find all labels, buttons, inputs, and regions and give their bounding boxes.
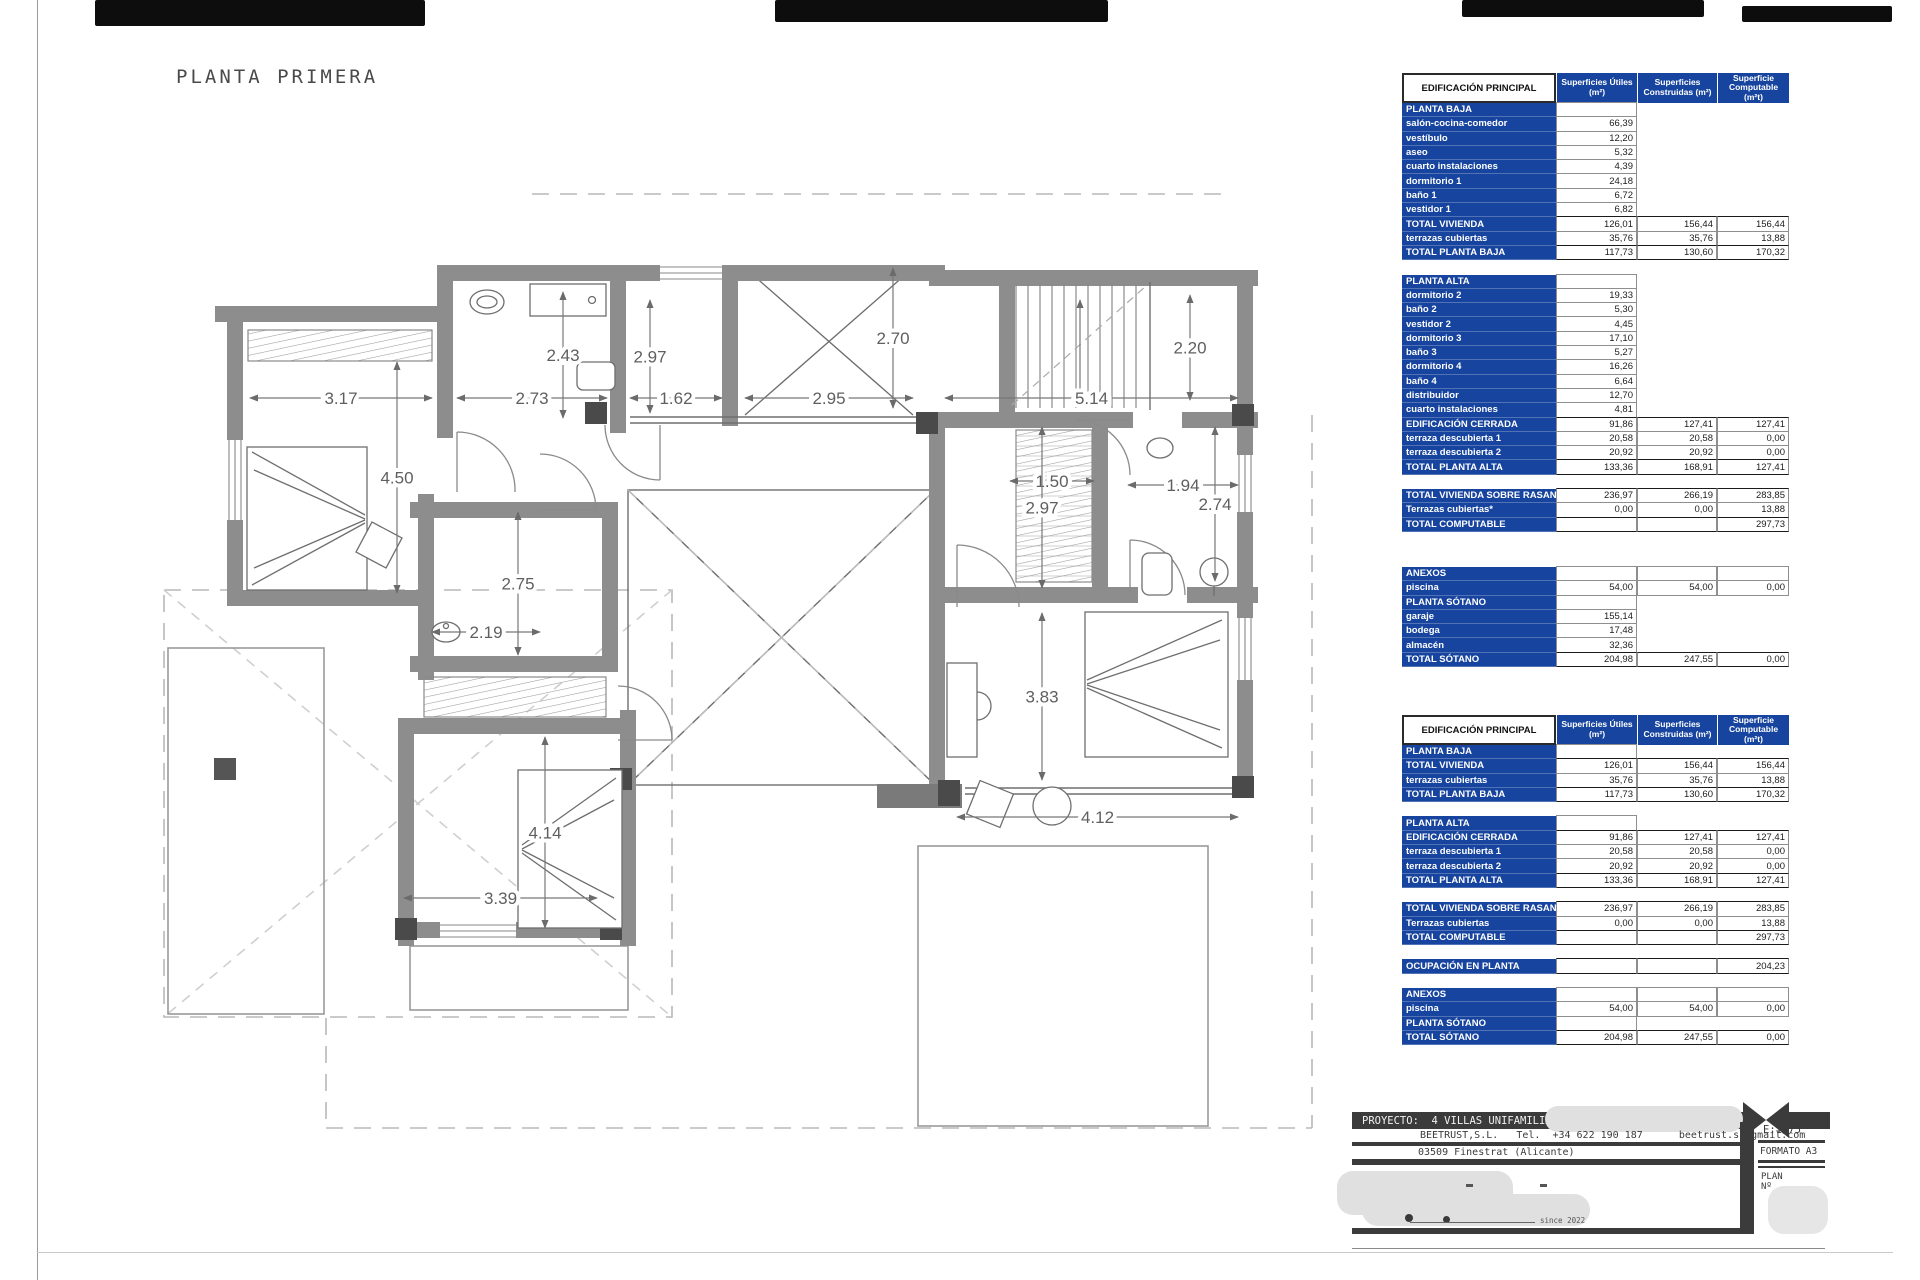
empty-cell bbox=[1637, 360, 1717, 374]
row-label-item: garaje bbox=[1402, 610, 1556, 624]
value-cell: 13,88 bbox=[1717, 231, 1789, 246]
value-cell: 170,32 bbox=[1717, 787, 1789, 802]
value-cell bbox=[1637, 958, 1717, 973]
dimension-label: 1.50 bbox=[1035, 472, 1068, 491]
empty-cell bbox=[1637, 332, 1717, 346]
col-header-construidas: Superficies Construidas (m²) bbox=[1637, 73, 1717, 103]
value-cell: 20,58 bbox=[1637, 844, 1717, 859]
value-cell bbox=[1556, 744, 1637, 759]
row-label-item: cuarto instalaciones bbox=[1402, 403, 1556, 417]
value-cell: 283,85 bbox=[1717, 488, 1789, 503]
value-cell: 266,19 bbox=[1637, 488, 1717, 503]
empty-cell bbox=[1637, 346, 1717, 360]
table-gap-row bbox=[1402, 260, 1789, 274]
empty-cell bbox=[1637, 389, 1717, 403]
row-label-tot: TOTAL PLANTA ALTA bbox=[1402, 874, 1556, 888]
empty-cell bbox=[1637, 103, 1717, 117]
value-cell: 247,55 bbox=[1637, 1030, 1717, 1045]
value-cell: 0,00 bbox=[1717, 652, 1789, 667]
value-cell: 204,98 bbox=[1556, 652, 1637, 667]
dimension-label: 4.12 bbox=[1081, 808, 1114, 827]
value-cell: 6,82 bbox=[1556, 202, 1637, 217]
row-label-item: Terrazas cubiertas* bbox=[1402, 503, 1556, 517]
terrace-marker bbox=[214, 758, 236, 780]
value-cell bbox=[1556, 958, 1637, 973]
value-cell: 247,55 bbox=[1637, 652, 1717, 667]
table-header: EDIFICACIÓN PRINCIPAL Superficies Útiles… bbox=[1402, 715, 1789, 745]
logo-mark bbox=[1466, 1184, 1473, 1187]
row-label-tot: OCUPACIÓN EN PLANTA bbox=[1402, 959, 1556, 973]
value-cell: 20,92 bbox=[1637, 858, 1717, 873]
col-header-computable: Superficie Computable (m²t) bbox=[1717, 73, 1789, 103]
value-cell: 4,39 bbox=[1556, 159, 1637, 174]
titleblock-rule bbox=[1758, 1140, 1825, 1143]
empty-cell bbox=[1717, 317, 1789, 331]
titleblock-rule bbox=[1352, 1228, 1743, 1234]
row-label-sec: ANEXOS bbox=[1402, 988, 1556, 1002]
empty-cell bbox=[1717, 103, 1789, 117]
row-label-item: vestidor 1 bbox=[1402, 203, 1556, 217]
value-cell: 297,73 bbox=[1717, 517, 1789, 532]
row-label-item: terrazas cubiertas bbox=[1402, 232, 1556, 246]
value-cell: 127,41 bbox=[1637, 830, 1717, 845]
value-cell: 0,00 bbox=[1556, 916, 1637, 931]
value-cell: 0,00 bbox=[1717, 445, 1789, 460]
value-cell bbox=[1637, 987, 1717, 1002]
value-cell: 0,00 bbox=[1717, 844, 1789, 859]
value-cell: 20,92 bbox=[1556, 445, 1637, 460]
dimension-label: 4.14 bbox=[528, 824, 561, 843]
empty-cell bbox=[1717, 389, 1789, 403]
row-label-item: terraza descubierta 1 bbox=[1402, 432, 1556, 446]
row-label-item: baño 2 bbox=[1402, 303, 1556, 317]
titleblock-rule bbox=[1758, 1160, 1825, 1163]
empty-cell bbox=[1717, 275, 1789, 289]
empty-cell bbox=[1717, 146, 1789, 160]
value-cell: 130,60 bbox=[1637, 787, 1717, 802]
value-cell: 156,44 bbox=[1717, 216, 1789, 231]
value-cell: 35,76 bbox=[1556, 231, 1637, 246]
dimension-label: 2.97 bbox=[633, 348, 666, 367]
value-cell: 156,44 bbox=[1637, 216, 1717, 231]
row-label-item: terraza descubierta 1 bbox=[1402, 845, 1556, 859]
empty-cell bbox=[1717, 203, 1789, 217]
value-cell: 6,64 bbox=[1556, 374, 1637, 389]
row-label-item: dormitorio 4 bbox=[1402, 360, 1556, 374]
value-cell: 20,92 bbox=[1556, 858, 1637, 873]
value-cell: 266,19 bbox=[1637, 901, 1717, 916]
value-cell: 0,00 bbox=[1637, 916, 1717, 931]
value-cell: 168,91 bbox=[1637, 873, 1717, 888]
value-cell bbox=[1556, 815, 1637, 830]
value-cell bbox=[1556, 566, 1637, 581]
dimension-label: 2.75 bbox=[501, 575, 534, 594]
value-cell: 170,32 bbox=[1717, 245, 1789, 260]
row-label-item: vestidor 2 bbox=[1402, 317, 1556, 331]
empty-cell bbox=[1717, 132, 1789, 146]
col-header-utiles: Superficies Útiles (m²) bbox=[1556, 715, 1637, 745]
value-cell: 0,00 bbox=[1717, 580, 1789, 595]
value-cell: 0,00 bbox=[1717, 1001, 1789, 1016]
empty-cell bbox=[1717, 610, 1789, 624]
row-label-tot: TOTAL VIVIENDA bbox=[1402, 759, 1556, 773]
value-cell: 168,91 bbox=[1637, 459, 1717, 474]
row-label-tot: TOTAL SÓTANO bbox=[1402, 1031, 1556, 1045]
empty-cell bbox=[1717, 375, 1789, 389]
dimension-label: 1.94 bbox=[1166, 476, 1199, 495]
value-cell bbox=[1637, 517, 1717, 532]
titleblock-vbar bbox=[1740, 1122, 1754, 1234]
row-label-item: piscina bbox=[1402, 581, 1556, 595]
row-label-item: distribuidor bbox=[1402, 389, 1556, 403]
row-label-tot: EDIFICACIÓN CERRADA bbox=[1402, 831, 1556, 845]
value-cell: 204,23 bbox=[1717, 958, 1789, 973]
row-label-item: terraza descubierta 2 bbox=[1402, 446, 1556, 460]
terrace-outline bbox=[168, 648, 1208, 1126]
row-label-sec: PLANTA SÓTANO bbox=[1402, 1017, 1556, 1031]
value-cell: 5,32 bbox=[1556, 145, 1637, 160]
value-cell: 0,00 bbox=[1717, 1030, 1789, 1045]
dimension-label: 3.39 bbox=[484, 889, 517, 908]
empty-cell bbox=[1637, 189, 1717, 203]
empty-cell bbox=[1717, 303, 1789, 317]
row-label-sec: PLANTA SÓTANO bbox=[1402, 596, 1556, 610]
value-cell: 0,00 bbox=[1556, 502, 1637, 517]
value-cell: 20,92 bbox=[1637, 445, 1717, 460]
value-cell: 24,18 bbox=[1556, 173, 1637, 188]
row-label-item: baño 1 bbox=[1402, 189, 1556, 203]
table-gap-row bbox=[1402, 888, 1789, 902]
value-cell: 126,01 bbox=[1556, 216, 1637, 231]
titleblock-rule bbox=[1758, 1166, 1825, 1168]
col-header-computable: Superficie Computable (m²t) bbox=[1717, 715, 1789, 745]
table-header: EDIFICACIÓN PRINCIPAL Superficies Útiles… bbox=[1402, 73, 1789, 103]
empty-cell bbox=[1637, 638, 1717, 652]
dimension-label: 2.43 bbox=[546, 346, 579, 365]
empty-cell bbox=[1717, 289, 1789, 303]
value-cell: 35,76 bbox=[1556, 773, 1637, 788]
empty-cell bbox=[1717, 816, 1789, 830]
empty-cell bbox=[1637, 745, 1717, 759]
row-label-item: almacén bbox=[1402, 638, 1556, 652]
row-label-item: terraza descubierta 2 bbox=[1402, 859, 1556, 873]
value-cell bbox=[1556, 274, 1637, 289]
value-cell: 54,00 bbox=[1556, 580, 1637, 595]
value-cell bbox=[1556, 517, 1637, 532]
value-cell: 35,76 bbox=[1637, 231, 1717, 246]
value-cell: 127,41 bbox=[1717, 873, 1789, 888]
value-cell: 32,36 bbox=[1556, 637, 1637, 652]
value-cell: 126,01 bbox=[1556, 758, 1637, 773]
value-cell: 156,44 bbox=[1717, 758, 1789, 773]
row-label-tot: TOTAL COMPUTABLE bbox=[1402, 931, 1556, 945]
value-cell: 127,41 bbox=[1717, 459, 1789, 474]
value-cell: 236,97 bbox=[1556, 488, 1637, 503]
value-cell: 13,88 bbox=[1717, 502, 1789, 517]
titleblock-bottom-line bbox=[1352, 1248, 1825, 1249]
row-label-item: bodega bbox=[1402, 624, 1556, 638]
table-gap-row bbox=[1402, 802, 1789, 816]
empty-cell bbox=[1637, 146, 1717, 160]
empty-cell bbox=[1637, 610, 1717, 624]
dimension-label: 5.14 bbox=[1075, 389, 1108, 408]
col-header-construidas: Superficies Construidas (m²) bbox=[1637, 715, 1717, 745]
value-cell: 54,00 bbox=[1637, 1001, 1717, 1016]
value-cell: 127,41 bbox=[1717, 417, 1789, 432]
value-cell: 16,26 bbox=[1556, 359, 1637, 374]
since-label: since 2022 bbox=[1540, 1216, 1585, 1225]
value-cell: 66,39 bbox=[1556, 116, 1637, 131]
row-label-sec: PLANTA ALTA bbox=[1402, 816, 1556, 830]
value-cell bbox=[1717, 987, 1789, 1002]
logo-mark bbox=[1405, 1214, 1413, 1222]
row-label-item: terrazas cubiertas bbox=[1402, 774, 1556, 788]
value-cell: 155,14 bbox=[1556, 609, 1637, 624]
table-gap-row bbox=[1402, 945, 1789, 959]
empty-cell bbox=[1637, 816, 1717, 830]
value-cell: 130,60 bbox=[1637, 245, 1717, 260]
empty-cell bbox=[1637, 160, 1717, 174]
titleblock-rule bbox=[1352, 1142, 1743, 1146]
value-cell: 283,85 bbox=[1717, 901, 1789, 916]
dimension-label: 2.73 bbox=[515, 389, 548, 408]
empty-cell bbox=[1637, 403, 1717, 417]
plan-number-label: Nº bbox=[1761, 1182, 1772, 1192]
row-label-tot: TOTAL VIVIENDA bbox=[1402, 217, 1556, 231]
surface-table-main: EDIFICACIÓN PRINCIPAL Superficies Útiles… bbox=[1402, 73, 1789, 532]
empty-cell bbox=[1717, 624, 1789, 638]
empty-cell bbox=[1637, 117, 1717, 131]
row-label-sec: PLANTA BAJA bbox=[1402, 103, 1556, 117]
dimension-label: 2.70 bbox=[876, 329, 909, 348]
value-cell: 5,30 bbox=[1556, 302, 1637, 317]
row-label-tot: TOTAL VIVIENDA SOBRE RASANTE bbox=[1402, 902, 1556, 916]
empty-cell bbox=[1637, 317, 1717, 331]
value-cell: 91,86 bbox=[1556, 830, 1637, 845]
row-label-tot: TOTAL SÓTANO bbox=[1402, 653, 1556, 667]
empty-cell bbox=[1637, 1017, 1717, 1031]
value-cell: 117,73 bbox=[1556, 787, 1637, 802]
table-corner-cell: EDIFICACIÓN PRINCIPAL bbox=[1402, 73, 1556, 103]
value-cell: 20,58 bbox=[1556, 844, 1637, 859]
dimension-label: 1.62 bbox=[659, 389, 692, 408]
empty-cell bbox=[1717, 346, 1789, 360]
empty-cell bbox=[1637, 132, 1717, 146]
value-cell: 0,00 bbox=[1717, 431, 1789, 446]
empty-cell bbox=[1637, 303, 1717, 317]
empty-cell bbox=[1717, 160, 1789, 174]
plan-label: PLAN bbox=[1761, 1172, 1783, 1182]
value-cell: 35,76 bbox=[1637, 773, 1717, 788]
value-cell: 297,73 bbox=[1717, 930, 1789, 945]
value-cell: 0,00 bbox=[1717, 858, 1789, 873]
empty-cell bbox=[1637, 275, 1717, 289]
empty-cell bbox=[1717, 117, 1789, 131]
dimension-label: 2.20 bbox=[1173, 339, 1206, 358]
surface-table-summary: EDIFICACIÓN PRINCIPAL Superficies Útiles… bbox=[1402, 715, 1789, 1045]
row-label-item: vestíbulo bbox=[1402, 132, 1556, 146]
empty-cell bbox=[1717, 360, 1789, 374]
row-label-item: cuarto instalaciones bbox=[1402, 160, 1556, 174]
value-cell: 13,88 bbox=[1717, 916, 1789, 931]
row-label-sec: PLANTA BAJA bbox=[1402, 745, 1556, 759]
value-cell: 4,81 bbox=[1556, 402, 1637, 417]
scale-label: E:1/75 bbox=[1763, 1124, 1801, 1136]
row-label-item: dormitorio 3 bbox=[1402, 332, 1556, 346]
value-cell: 133,36 bbox=[1556, 459, 1637, 474]
row-label-item: dormitorio 1 bbox=[1402, 174, 1556, 188]
surface-table-anexos: ANEXOSpiscina54,0054,000,00PLANTA SÓTANO… bbox=[1402, 567, 1789, 667]
value-cell: 133,36 bbox=[1556, 873, 1637, 888]
value-cell bbox=[1556, 595, 1637, 610]
value-cell: 54,00 bbox=[1637, 580, 1717, 595]
value-cell: 204,98 bbox=[1556, 1030, 1637, 1045]
value-cell: 236,97 bbox=[1556, 901, 1637, 916]
row-label-item: baño 3 bbox=[1402, 346, 1556, 360]
row-label-tot: TOTAL PLANTA BAJA bbox=[1402, 788, 1556, 802]
dimension-label: 2.74 bbox=[1198, 495, 1231, 514]
empty-cell bbox=[1637, 289, 1717, 303]
value-cell: 156,44 bbox=[1637, 758, 1717, 773]
value-cell: 0,00 bbox=[1637, 502, 1717, 517]
value-cell bbox=[1556, 987, 1637, 1002]
empty-cell bbox=[1637, 203, 1717, 217]
value-cell bbox=[1556, 1016, 1637, 1031]
table-gap-row bbox=[1402, 475, 1789, 489]
dimension-label: 3.83 bbox=[1025, 688, 1058, 707]
dimension-label: 2.95 bbox=[812, 389, 845, 408]
row-label-tot: TOTAL VIVIENDA SOBRE RASANTE bbox=[1402, 489, 1556, 503]
dimension-label: 4.50 bbox=[380, 469, 413, 488]
format-label: FORMATO A3 bbox=[1760, 1146, 1817, 1157]
value-cell: 4,45 bbox=[1556, 316, 1637, 331]
value-cell: 20,58 bbox=[1637, 431, 1717, 446]
value-cell: 117,73 bbox=[1556, 245, 1637, 260]
col-header-utiles: Superficies Útiles (m²) bbox=[1556, 73, 1637, 103]
value-cell: 127,41 bbox=[1717, 830, 1789, 845]
value-cell bbox=[1637, 566, 1717, 581]
value-cell bbox=[1556, 930, 1637, 945]
dimension-label: 2.97 bbox=[1025, 499, 1058, 518]
value-cell: 6,72 bbox=[1556, 188, 1637, 203]
value-cell bbox=[1556, 102, 1637, 117]
redaction-blob bbox=[1545, 1106, 1743, 1132]
empty-cell bbox=[1717, 189, 1789, 203]
value-cell: 127,41 bbox=[1637, 417, 1717, 432]
value-cell bbox=[1717, 566, 1789, 581]
redaction-blob bbox=[1768, 1186, 1828, 1234]
row-label-tot: TOTAL PLANTA BAJA bbox=[1402, 246, 1556, 260]
value-cell: 20,58 bbox=[1556, 431, 1637, 446]
row-label-item: Terrazas cubiertas bbox=[1402, 917, 1556, 931]
value-cell: 5,27 bbox=[1556, 345, 1637, 360]
signature-rule bbox=[1410, 1222, 1535, 1223]
empty-cell bbox=[1637, 375, 1717, 389]
value-cell: 17,48 bbox=[1556, 623, 1637, 638]
value-cell bbox=[1637, 930, 1717, 945]
value-cell: 54,00 bbox=[1556, 1001, 1637, 1016]
empty-cell bbox=[1717, 638, 1789, 652]
empty-cell bbox=[1637, 174, 1717, 188]
row-label-tot: TOTAL COMPUTABLE bbox=[1402, 518, 1556, 532]
dimension-label: 3.17 bbox=[324, 389, 357, 408]
row-label-item: aseo bbox=[1402, 146, 1556, 160]
table-corner-cell: EDIFICACIÓN PRINCIPAL bbox=[1402, 715, 1556, 745]
value-cell: 13,88 bbox=[1717, 773, 1789, 788]
row-label-item: baño 4 bbox=[1402, 375, 1556, 389]
row-label-item: piscina bbox=[1402, 1002, 1556, 1016]
row-label-tot: TOTAL PLANTA ALTA bbox=[1402, 460, 1556, 474]
row-label-sec: ANEXOS bbox=[1402, 567, 1556, 581]
empty-cell bbox=[1637, 624, 1717, 638]
row-label-item: salón-cocina-comedor bbox=[1402, 117, 1556, 131]
value-cell: 19,33 bbox=[1556, 288, 1637, 303]
empty-cell bbox=[1717, 332, 1789, 346]
row-label-sec: PLANTA ALTA bbox=[1402, 275, 1556, 289]
logo-mark bbox=[1540, 1184, 1547, 1187]
empty-cell bbox=[1717, 745, 1789, 759]
titleblock-rule bbox=[1352, 1159, 1743, 1165]
empty-cell bbox=[1717, 1017, 1789, 1031]
empty-cell bbox=[1637, 596, 1717, 610]
empty-cell bbox=[1717, 596, 1789, 610]
value-cell: 17,10 bbox=[1556, 331, 1637, 346]
address-line: 03509 Finestrat (Alicante) bbox=[1418, 1147, 1575, 1158]
dimension-label: 2.19 bbox=[469, 623, 502, 642]
value-cell: 91,86 bbox=[1556, 417, 1637, 432]
row-label-tot: EDIFICACIÓN CERRADA bbox=[1402, 418, 1556, 432]
table-gap-row bbox=[1402, 974, 1789, 988]
value-cell: 12,20 bbox=[1556, 131, 1637, 146]
empty-cell bbox=[1717, 403, 1789, 417]
empty-cell bbox=[1717, 174, 1789, 188]
value-cell: 12,70 bbox=[1556, 388, 1637, 403]
row-label-item: dormitorio 2 bbox=[1402, 289, 1556, 303]
